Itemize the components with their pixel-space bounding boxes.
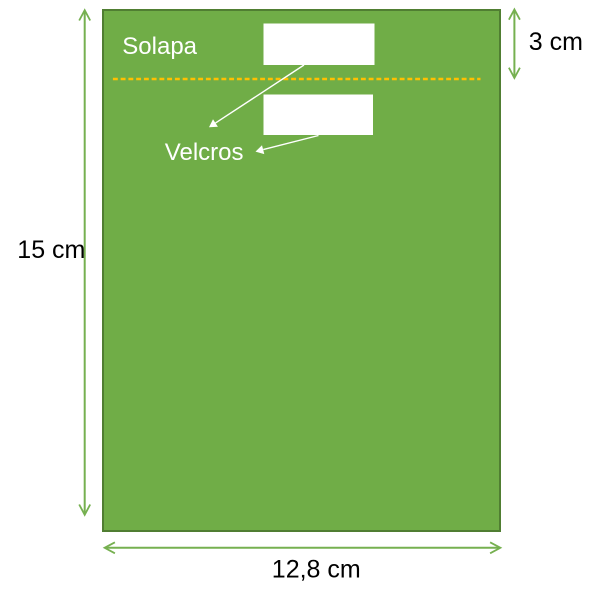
svg-text:12,8 cm: 12,8 cm [272,556,361,584]
svg-text:15 cm: 15 cm [17,236,85,264]
svg-text:Velcros: Velcros [165,139,244,166]
svg-text:3 cm: 3 cm [529,28,583,56]
svg-text:Solapa: Solapa [122,33,197,60]
